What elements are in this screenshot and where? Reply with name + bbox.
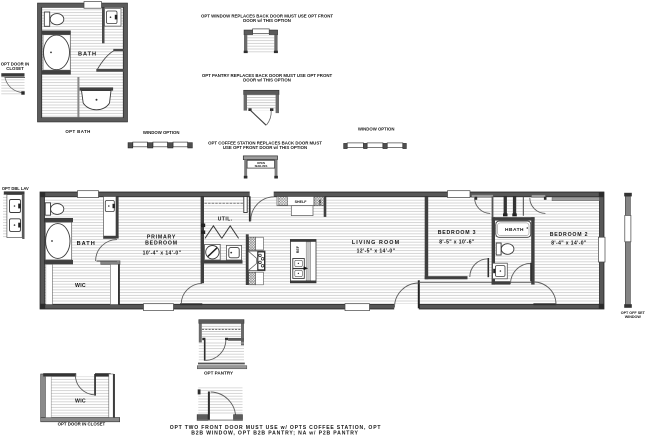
svg-text:BEDROOM: BEDROOM xyxy=(145,240,178,246)
svg-text:OPT BATH: OPT BATH xyxy=(65,129,90,134)
svg-text:B2B WINDOW, OPT B2B PANTRY; NA: B2B WINDOW, OPT B2B PANTRY; NA w/ P2B PA… xyxy=(191,431,359,437)
svg-text:WINDOW OPTION: WINDOW OPTION xyxy=(358,127,395,132)
svg-text:BATH: BATH xyxy=(78,51,97,57)
svg-text:OPT PANTRY: OPT PANTRY xyxy=(204,370,233,375)
svg-text:USE OPT FRONT DOOR w/ THIS OPT: USE OPT FRONT DOOR w/ THIS OPTION xyxy=(223,145,307,150)
svg-text:LIVING ROOM: LIVING ROOM xyxy=(352,240,400,246)
svg-text:OPT DBL LAV: OPT DBL LAV xyxy=(2,186,29,191)
svg-text:BEDROOM 2: BEDROOM 2 xyxy=(550,232,589,238)
svg-text:REF: REF xyxy=(296,245,300,253)
svg-text:CLOSET: CLOSET xyxy=(6,66,24,71)
svg-text:OPT DOOR IN CLOSET: OPT DOOR IN CLOSET xyxy=(58,421,106,426)
svg-text:BEDROOM 3: BEDROOM 3 xyxy=(438,230,477,236)
svg-text:DOOR w/ THIS OPTION: DOOR w/ THIS OPTION xyxy=(243,18,291,23)
svg-text:SHELF: SHELF xyxy=(295,200,308,204)
svg-text:UTIL.: UTIL. xyxy=(218,216,233,222)
svg-text:HBATH: HBATH xyxy=(505,227,524,233)
svg-text:12'-5" x 14'-0": 12'-5" x 14'-0" xyxy=(357,249,396,255)
svg-text:WINDOW: WINDOW xyxy=(625,315,642,319)
svg-text:WINDOW OPTION: WINDOW OPTION xyxy=(143,130,180,135)
svg-text:DOOR w/ THIS OPTION: DOOR w/ THIS OPTION xyxy=(243,77,291,82)
svg-text:SHELVES: SHELVES xyxy=(255,164,268,168)
svg-text:8'-5" x 10'-6": 8'-5" x 10'-6" xyxy=(439,239,475,245)
svg-text:10'-4" x 14'-0": 10'-4" x 14'-0" xyxy=(143,250,182,256)
svg-text:WIC: WIC xyxy=(75,398,86,404)
svg-text:8'-4" x 14'-0": 8'-4" x 14'-0" xyxy=(551,240,587,246)
svg-text:WH: WH xyxy=(318,200,322,205)
svg-text:WIC: WIC xyxy=(75,283,86,289)
svg-text:BATH: BATH xyxy=(77,241,96,247)
